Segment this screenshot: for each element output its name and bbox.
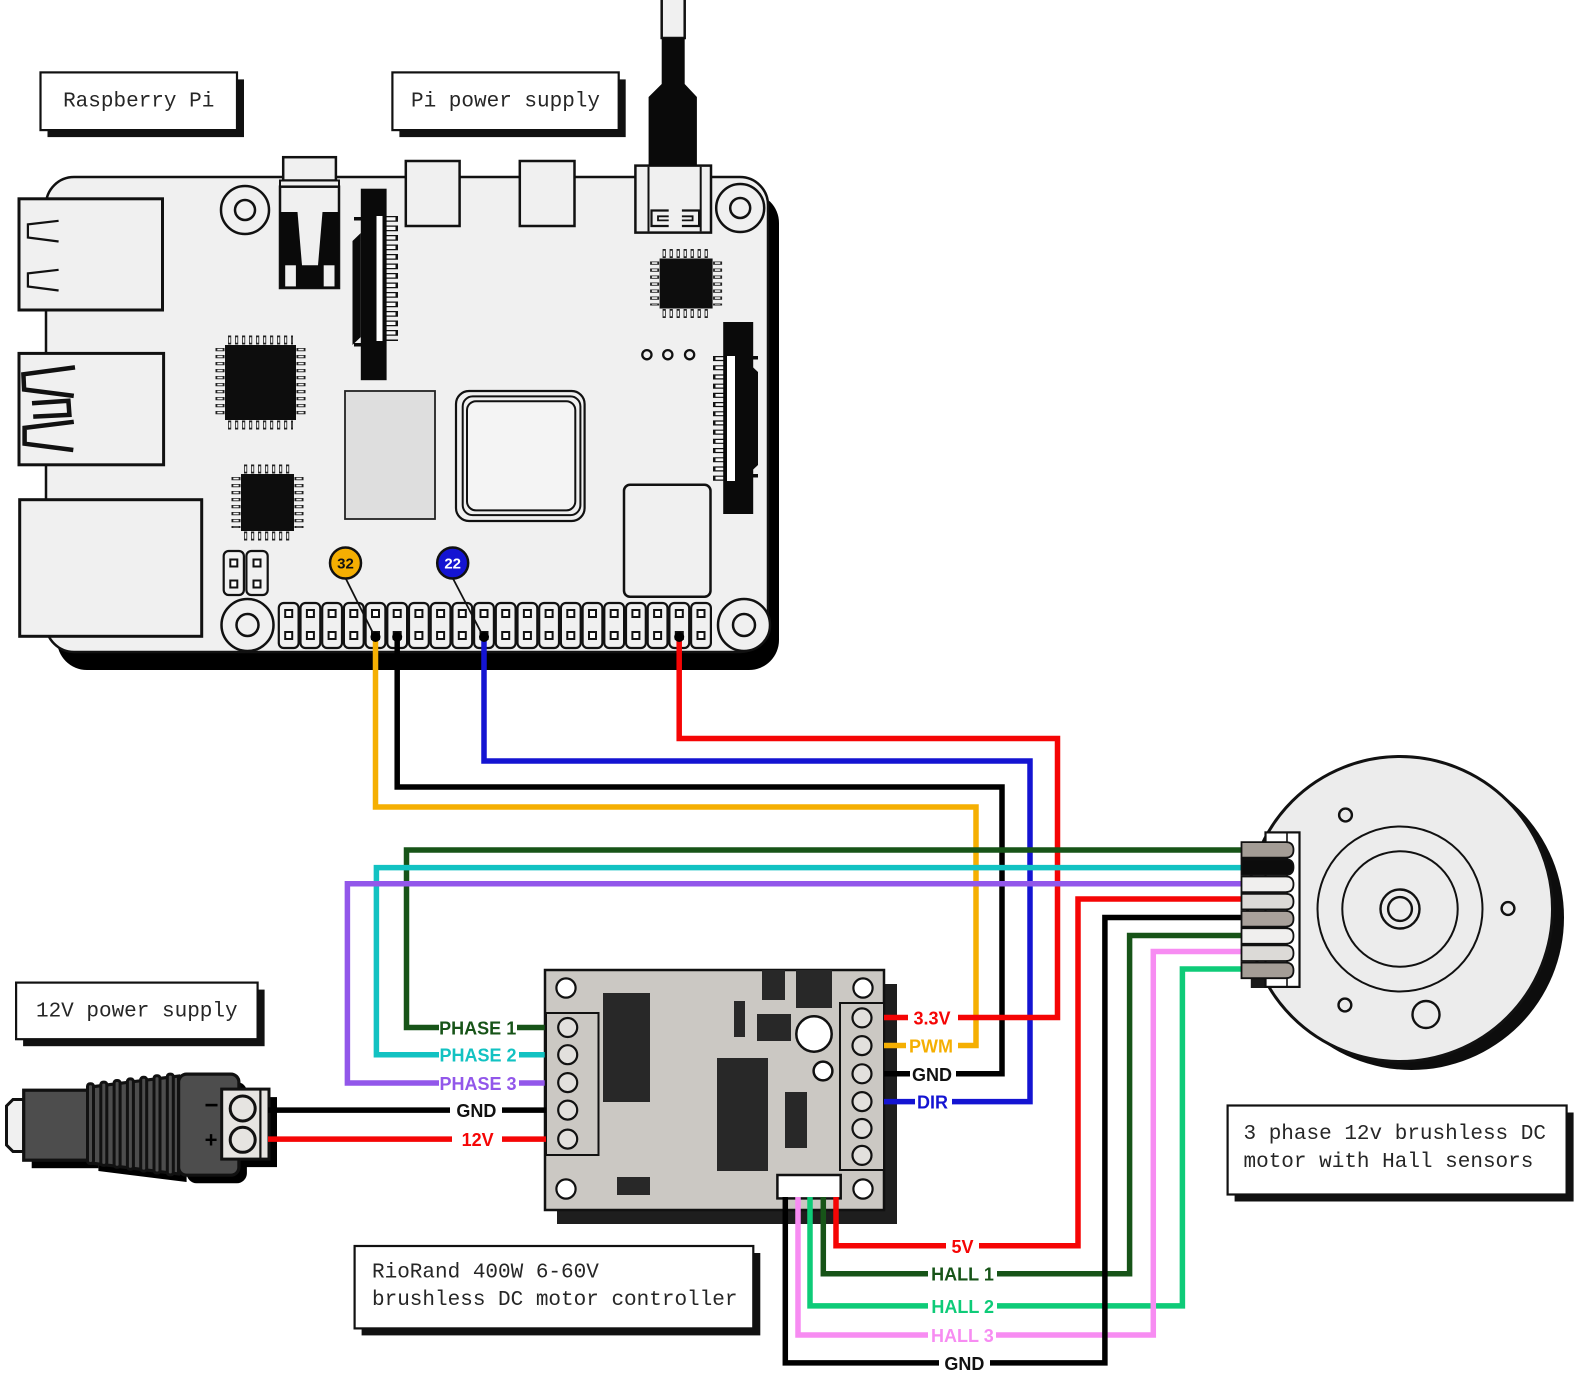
svg-text:PHASE 2: PHASE 2 bbox=[439, 1046, 516, 1066]
svg-text:HALL 1: HALL 1 bbox=[931, 1265, 994, 1285]
svg-text:12V: 12V bbox=[462, 1130, 494, 1150]
svg-text:brushless DC motor controller: brushless DC motor controller bbox=[372, 1289, 737, 1312]
svg-text:3 phase 12v brushless DC: 3 phase 12v brushless DC bbox=[1244, 1123, 1546, 1146]
svg-text:+: + bbox=[205, 1128, 218, 1153]
svg-text:GND: GND bbox=[912, 1065, 952, 1085]
svg-text:DIR: DIR bbox=[917, 1093, 948, 1113]
svg-text:RioRand 400W 6-60V: RioRand 400W 6-60V bbox=[372, 1262, 599, 1285]
svg-text:Pi power supply: Pi power supply bbox=[411, 91, 600, 114]
svg-text:HALL 3: HALL 3 bbox=[931, 1326, 994, 1346]
svg-text:HALL 2: HALL 2 bbox=[931, 1297, 994, 1317]
svg-text:GND: GND bbox=[456, 1101, 496, 1121]
svg-text:Raspberry Pi: Raspberry Pi bbox=[63, 91, 214, 114]
svg-text:motor with Hall sensors: motor with Hall sensors bbox=[1244, 1151, 1534, 1174]
svg-text:22: 22 bbox=[444, 556, 461, 573]
svg-text:−: − bbox=[204, 1092, 218, 1119]
svg-text:32: 32 bbox=[337, 556, 354, 573]
svg-text:PHASE 1: PHASE 1 bbox=[439, 1019, 516, 1039]
svg-text:5V: 5V bbox=[951, 1237, 973, 1257]
svg-text:PHASE 3: PHASE 3 bbox=[439, 1074, 516, 1094]
svg-text:GND: GND bbox=[944, 1354, 984, 1374]
svg-text:PWM: PWM bbox=[909, 1037, 953, 1057]
svg-text:3.3V: 3.3V bbox=[913, 1009, 950, 1029]
svg-text:12V power supply: 12V power supply bbox=[36, 1000, 238, 1023]
